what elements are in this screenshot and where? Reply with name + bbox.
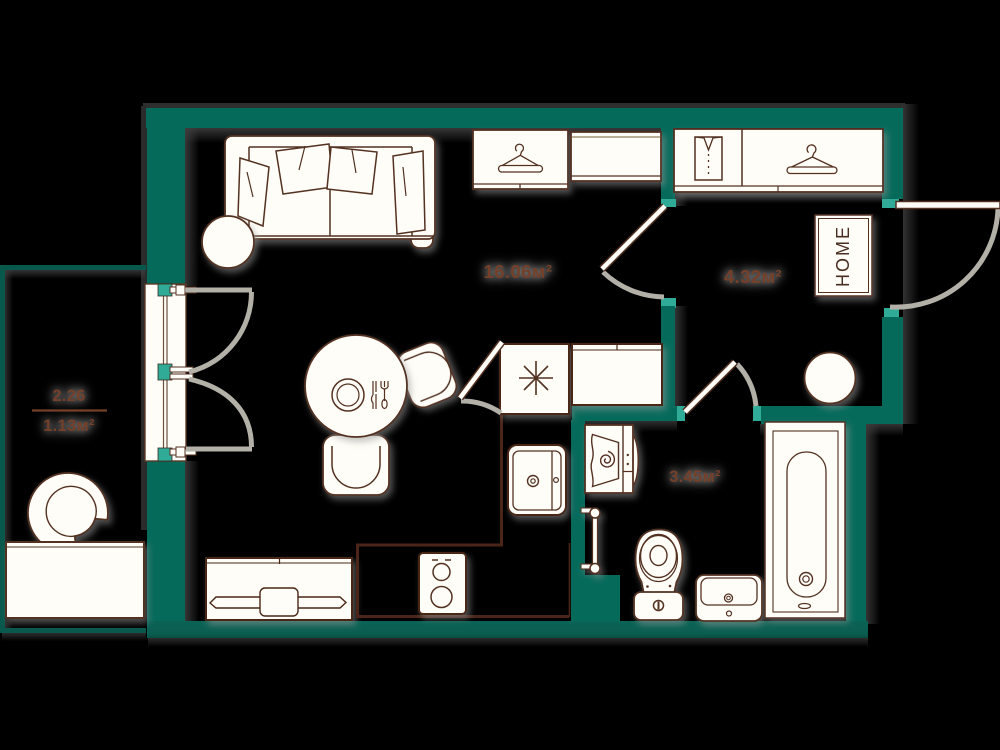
svg-text:1.13м²: 1.13м²	[43, 417, 95, 435]
svg-text:HOME: HOME	[833, 225, 853, 287]
svg-text:16.06м²: 16.06м²	[484, 261, 553, 282]
svg-text:3.45м²: 3.45м²	[669, 468, 721, 486]
svg-text:4.32м²: 4.32м²	[724, 266, 782, 287]
svg-text:2.26: 2.26	[52, 387, 85, 405]
